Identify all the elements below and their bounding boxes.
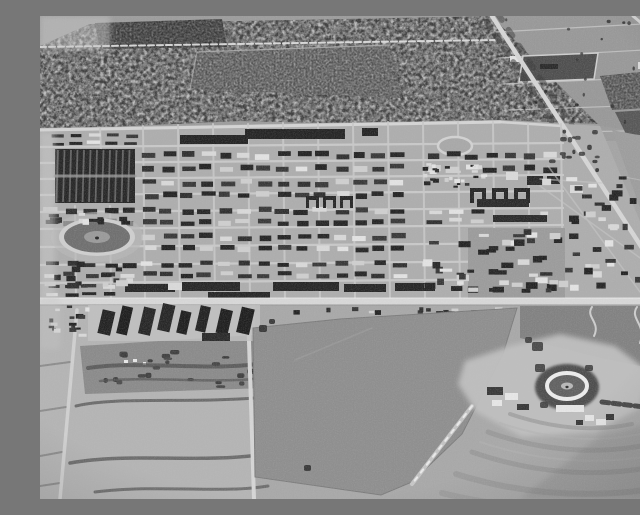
scene-root <box>40 16 640 499</box>
vignette <box>40 16 640 499</box>
aerial-photo-canvas <box>40 16 640 499</box>
aerial-photograph <box>40 16 640 499</box>
